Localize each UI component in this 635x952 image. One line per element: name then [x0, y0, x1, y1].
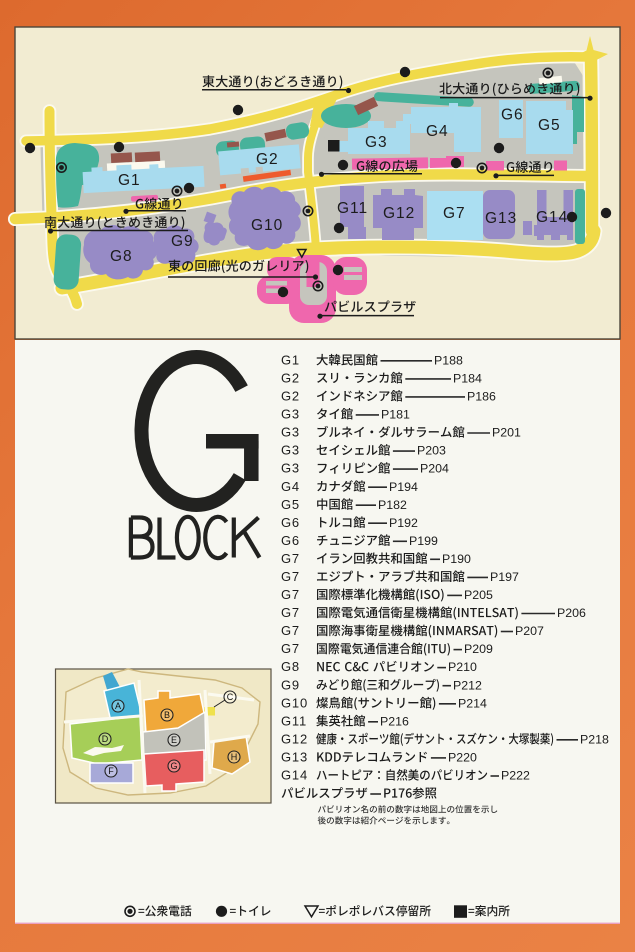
svg-text:G6: G6: [501, 107, 524, 124]
svg-text:E: E: [171, 735, 177, 745]
svg-text:G7: G7: [281, 623, 300, 638]
svg-text:G3: G3: [281, 443, 300, 458]
svg-text:G12: G12: [281, 731, 308, 746]
svg-text:G7: G7: [443, 205, 466, 222]
svg-text:G13: G13: [281, 750, 308, 765]
svg-text:P207: P207: [515, 624, 544, 638]
svg-text:G7: G7: [281, 587, 300, 602]
svg-text:P214: P214: [458, 696, 487, 710]
svg-text:P184: P184: [453, 371, 482, 385]
svg-text:P199: P199: [409, 534, 438, 548]
svg-text:P205: P205: [464, 588, 493, 602]
svg-text:P218: P218: [580, 732, 609, 746]
svg-text:G9: G9: [171, 233, 194, 250]
svg-text:G8: G8: [110, 248, 133, 265]
svg-text:P203: P203: [417, 444, 446, 458]
svg-text:G7: G7: [281, 641, 300, 656]
svg-text:G6: G6: [281, 515, 300, 530]
svg-text:G2: G2: [281, 389, 300, 404]
svg-text:G2: G2: [281, 370, 300, 385]
svg-text:G3: G3: [365, 134, 388, 151]
svg-text:G11: G11: [281, 713, 307, 728]
svg-text:P206: P206: [557, 606, 586, 620]
svg-text:P220: P220: [448, 751, 477, 765]
svg-text:P204: P204: [420, 462, 449, 476]
svg-text:P209: P209: [464, 642, 493, 656]
svg-text:P216: P216: [380, 714, 409, 728]
svg-text:F: F: [108, 766, 114, 776]
svg-text:H: H: [231, 752, 238, 762]
svg-text:G3: G3: [281, 461, 300, 476]
svg-text:P197: P197: [490, 570, 519, 584]
svg-text:P194: P194: [389, 480, 418, 494]
svg-text:G8: G8: [281, 659, 300, 674]
svg-text:P188: P188: [434, 353, 463, 367]
svg-text:G9: G9: [281, 677, 300, 692]
svg-text:D: D: [102, 734, 109, 744]
svg-text:P192: P192: [389, 516, 418, 530]
svg-text:G10: G10: [251, 217, 283, 234]
svg-text:G14: G14: [281, 768, 308, 783]
svg-text:B: B: [164, 710, 170, 720]
svg-text:A: A: [115, 701, 121, 711]
svg-text:G1: G1: [118, 172, 141, 189]
svg-text:P222: P222: [501, 769, 530, 783]
svg-text:G10: G10: [281, 695, 308, 710]
svg-text:P182: P182: [378, 498, 407, 512]
svg-text:G3: G3: [281, 425, 300, 440]
svg-text:G6: G6: [281, 533, 300, 548]
svg-text:P212: P212: [453, 678, 482, 692]
svg-text:G5: G5: [281, 497, 300, 512]
svg-text:G14: G14: [536, 209, 568, 226]
svg-text:P181: P181: [381, 408, 410, 422]
svg-text:G7: G7: [281, 551, 300, 566]
svg-text:G13: G13: [485, 210, 517, 227]
svg-text:G7: G7: [281, 605, 300, 620]
svg-text:C: C: [227, 692, 234, 702]
svg-text:G4: G4: [281, 479, 300, 494]
svg-text:G2: G2: [256, 151, 279, 168]
svg-text:P186: P186: [467, 390, 496, 404]
svg-text:G3: G3: [281, 407, 300, 422]
svg-text:G4: G4: [426, 123, 449, 140]
svg-text:G: G: [170, 761, 177, 771]
svg-text:P201: P201: [492, 426, 521, 440]
svg-text:G5: G5: [538, 117, 561, 134]
svg-text:P210: P210: [448, 660, 477, 674]
svg-text:G11: G11: [337, 200, 368, 217]
svg-text:G1: G1: [281, 352, 300, 367]
svg-text:G12: G12: [383, 205, 415, 222]
svg-text:P190: P190: [442, 552, 471, 566]
svg-text:G7: G7: [281, 569, 300, 584]
